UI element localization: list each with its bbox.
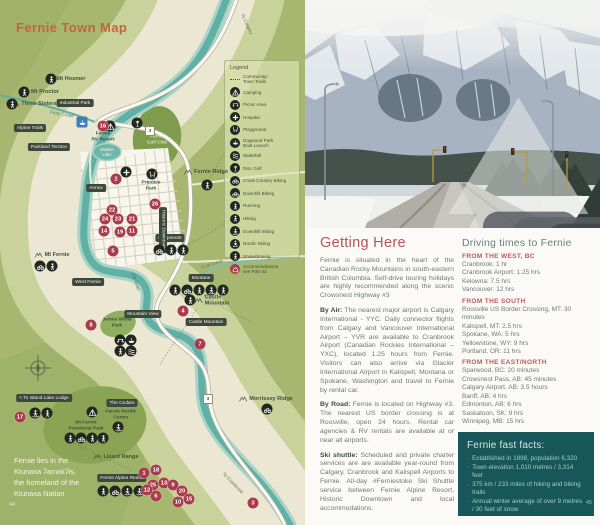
by-air-paragraph: By Air: The nearest major airport is Cal… (320, 307, 454, 395)
playground-icon (147, 169, 158, 180)
driving-row: Kalispell, MT: 2.5 hrs (462, 323, 594, 331)
legend-title: Legend (230, 65, 295, 71)
legend-item: Dogwood Park Boat Launch (230, 138, 295, 149)
by-road-label: By Road: (320, 401, 350, 408)
accommodation-marker: 1 (139, 468, 150, 479)
driving-row: Portland, OR: 11 hrs (462, 348, 594, 356)
mountain-label: Morrissey Ridge (239, 396, 293, 402)
picnic-icon (115, 335, 126, 346)
accommodation-marker: 21 (127, 214, 138, 225)
running-icon (166, 245, 177, 256)
fernie-fast-facts-box: Fernie fast facts: ·Established in 1898,… (458, 432, 594, 516)
legend-item: Running (230, 201, 295, 211)
hiking-icon (19, 87, 30, 98)
nordic-skiing-icon (113, 422, 124, 433)
driving-row: Cranbrook Airport: 1.25 hrs (462, 269, 594, 277)
accommodation-marker: 17 (15, 412, 26, 423)
place-label: Maiden Lake (100, 147, 114, 157)
map-page: Fernie Town Map Legend Community/ Town T… (0, 0, 305, 525)
driving-row: Crowsnest Pass, AB: 45 minutes (462, 376, 594, 384)
page-number-right: 45 (586, 500, 592, 506)
biking-icon (262, 404, 273, 415)
boat-icon (126, 335, 137, 346)
intro-paragraph: Fernie is situated in the heart of the C… (320, 257, 454, 301)
fast-fact: ·Annual winter average of over 9 metres … (467, 498, 585, 515)
hiking-icon (178, 245, 189, 256)
accommodation-marker: 11 (127, 226, 138, 237)
area-badge: Annex (86, 184, 106, 192)
accommodation-marker: 2 (111, 174, 122, 185)
dh-skiing-icon (230, 226, 240, 236)
legend-item: Cross Country Biking (230, 176, 295, 186)
accommodation-marker: 12 (142, 485, 153, 496)
mountain-label: Fernie Ridge (184, 169, 228, 175)
driving-section-east-north: FROM THE EAST/NORTH Sparwood, BC: 20 min… (462, 359, 594, 426)
accommodation-marker: 16 (98, 121, 109, 132)
waterfall-icon (126, 346, 137, 357)
driving-section-south: FROM THE SOUTH Roosville US Border Cross… (462, 298, 594, 357)
mountain-label: Three Sisters (11, 101, 56, 107)
hospital-icon (121, 167, 132, 178)
accommodation-marker: 24 (100, 214, 111, 225)
accommodation-marker: 7 (195, 339, 206, 350)
hiking-icon (46, 74, 57, 85)
highway-3-shield: 3 (145, 126, 155, 136)
skiing-icon (122, 486, 133, 497)
area-badge: < To Island Lake Lodge (16, 394, 72, 402)
legend-item: Hospital (230, 112, 295, 122)
fernie-street-photo (305, 0, 600, 228)
accommodation-marker: 18 (151, 465, 162, 476)
hiking-icon (65, 433, 76, 444)
legend-item: Playground (230, 125, 295, 135)
accommodation-marker: 19 (115, 227, 126, 238)
disc-golf-icon (230, 163, 240, 173)
hiking-icon (230, 214, 240, 224)
biking-icon (154, 245, 165, 256)
page-number-left: 44 (9, 502, 15, 508)
camping-icon (230, 87, 240, 97)
biking-icon (110, 486, 121, 497)
accommodation-marker: 15 (184, 494, 195, 505)
ski-shuttle-paragraph: Ski shuttle: Scheduled and private chart… (320, 452, 454, 514)
fast-fact: ·Town elevation 1,010 metres / 3,314 fee… (467, 464, 585, 481)
ktunaxa-acknowledgement: Fernie lies in the Ktunaxa ʔamakʔis, the… (14, 455, 79, 499)
accommodation-marker: 4 (178, 306, 189, 317)
nordic-skiing-icon (230, 239, 240, 249)
accommodation-marker: 3 (248, 498, 259, 509)
place-label: Prentice Park (142, 180, 161, 192)
accommodation-marker: 10 (173, 497, 184, 508)
driving-row: Cranbrook: 1 hr (462, 261, 594, 269)
by-air-label: By Air: (320, 307, 342, 314)
place-label: Fernie RV Resort (91, 131, 114, 143)
hiking-icon (185, 295, 196, 306)
running-icon (230, 201, 240, 211)
running-icon (115, 346, 126, 357)
mountain-label: Lizard Range (93, 454, 138, 460)
accommodation-marker: 6 (151, 491, 162, 502)
dh-biking-icon (230, 188, 240, 198)
ski-shuttle-label: Ski shuttle: (320, 452, 358, 459)
area-badge: Parkland Terrace (28, 143, 70, 151)
fast-facts-title: Fernie fast facts: (467, 440, 585, 451)
legend-item: Community/ Town Trails (230, 74, 295, 85)
map-title: Fernie Town Map (16, 20, 127, 35)
driving-row: Edmonton, AB: 6 hrs (462, 401, 594, 409)
hiking-icon (47, 261, 58, 272)
picnic-icon (230, 100, 240, 110)
map-legend: Legend Community/ Town Trails Camping Pi… (224, 60, 300, 258)
legend-item: Disc Golf (230, 163, 295, 173)
fast-fact: ·Established in 1898, population 6,320 (467, 455, 585, 464)
skiing-icon (30, 408, 41, 419)
accommodation-marker: 23 (113, 214, 124, 225)
accommodation-marker: 8 (86, 320, 97, 331)
waterfall-icon (230, 151, 240, 161)
hiking-icon (98, 486, 109, 497)
snowshoeing-icon (218, 285, 229, 296)
getting-here-title: Getting Here (320, 235, 454, 251)
driving-row: Banff, AB: 4 hrs (462, 393, 594, 401)
mountain-label: Mt Fernie (35, 252, 70, 258)
skiing-icon (206, 285, 217, 296)
area-badge: Montane (189, 274, 214, 282)
legend-item: Snowshoeing (230, 251, 295, 261)
biking-icon (76, 433, 87, 444)
hiking-icon (7, 99, 18, 110)
driving-row: Calgary Airport, AB: 3.5 hours (462, 384, 594, 392)
legend-item: Downhill Skiing (230, 226, 295, 236)
brochure-spread: Fernie Town Map Legend Community/ Town T… (0, 0, 600, 525)
snowshoeing-icon (98, 433, 109, 444)
legend-item: Camping (230, 87, 295, 97)
area-badge: Castle Mountain (186, 318, 227, 326)
highway-3-shield: 3 (203, 394, 213, 404)
hospital-icon (230, 112, 240, 122)
place-label: Mt Fernie Provincial Park (69, 420, 104, 432)
driving-row: Winnipeg, MB: 15 hrs (462, 418, 594, 426)
driving-row: Spokane, WA: 5 hrs (462, 331, 594, 339)
camping-icon (87, 407, 98, 418)
running-icon (87, 433, 98, 444)
playground-icon (230, 125, 240, 135)
driving-row: Vancouver: 12 hrs (462, 286, 594, 294)
driving-row: Kelowna: 7.5 hrs (462, 278, 594, 286)
driving-row: Sparwood, BC: 20 minutes (462, 367, 594, 375)
info-page: Getting Here Fernie is situated in the h… (305, 0, 600, 525)
hiking-icon (170, 285, 181, 296)
driving-row: Yellowstone, WY: 9 hrs (462, 340, 594, 348)
accommodation-marker: 26 (150, 199, 161, 210)
legend-item: Accommodations see P30-33 (230, 264, 295, 275)
area-badge: Alpine Trails (14, 124, 46, 132)
biking-icon (35, 261, 46, 272)
by-road-paragraph: By Road: Fernie is located on Highway #3… (320, 401, 454, 445)
legend-item: Downhill Biking (230, 188, 295, 198)
boat-launch-icon (77, 117, 88, 128)
accommodation-marker: 5 (108, 246, 119, 257)
driving-row: Saskatoon, SK: 9 hrs (462, 410, 594, 418)
place-label: James White Park (102, 317, 131, 329)
driving-times-section: Driving times to Fernie FROM THE WEST, B… (462, 237, 594, 429)
area-badge: The Cedars (106, 399, 137, 407)
legend-item: Nordic Skiing (230, 239, 295, 249)
hiking-icon (202, 180, 213, 191)
disc-golf-icon (132, 118, 143, 129)
legend-item: Picnic Area (230, 100, 295, 110)
fast-fact: ·375 km / 233 miles of hiking and biking… (467, 481, 585, 498)
legend-item: Hiking (230, 214, 295, 224)
running-icon (194, 285, 205, 296)
area-badge: Industrial Park (57, 99, 94, 107)
boat-launch-icon (230, 138, 240, 148)
area-badge: West Fernie (72, 278, 104, 286)
accommodation-icon (230, 264, 240, 274)
accommodation-marker: 14 (99, 226, 110, 237)
trail-dotted-icon (230, 79, 240, 80)
snowshoeing-icon (230, 251, 240, 261)
mountain-label: Castle Mountain (195, 295, 230, 308)
legend-item: Waterfall (230, 151, 295, 161)
hiking-icon (42, 408, 53, 419)
driving-times-title: Driving times to Fernie (462, 237, 594, 249)
xc-biking-icon (230, 176, 240, 186)
place-label: Fernie Nordic Centre (106, 409, 137, 421)
driving-section-west: FROM THE WEST, BC Cranbrook: 1 hr Cranbr… (462, 253, 594, 295)
driving-row: Roosville US Border Crossing, MT: 30 min… (462, 306, 594, 323)
getting-here-section: Getting Here Fernie is situated in the h… (320, 235, 454, 519)
